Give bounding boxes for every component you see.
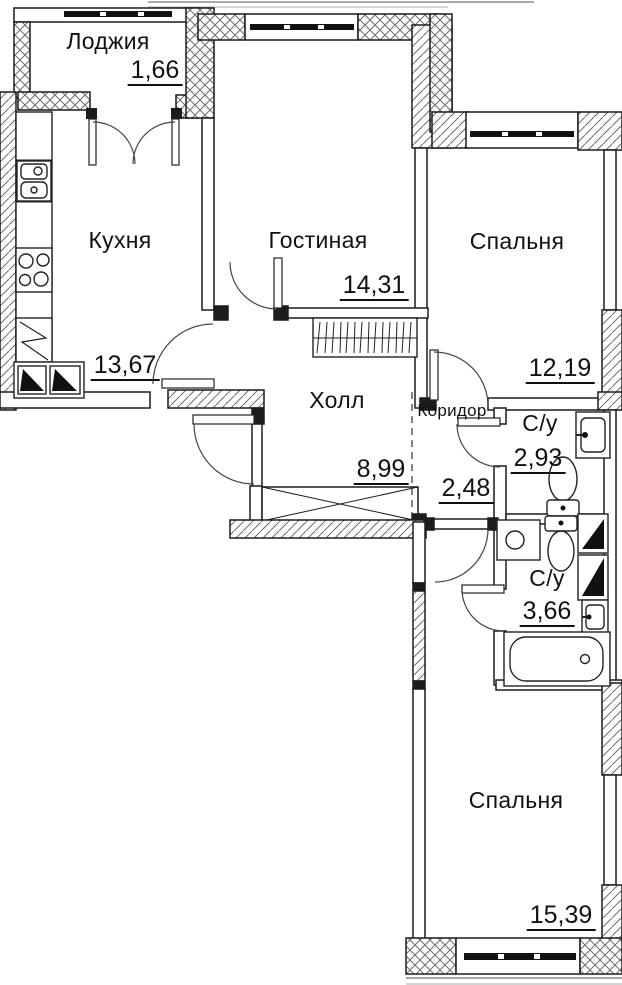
washbasin-icon: [582, 600, 608, 634]
bathroom2-door: [462, 585, 504, 631]
loggia-window: [14, 8, 198, 22]
bathtub-icon: [504, 632, 610, 686]
room-label-corridor: Коридор: [417, 402, 486, 420]
room-area-bedroom1: 12,19: [526, 356, 595, 384]
room-label-bath2: С/у: [529, 566, 564, 590]
room-label-living: Гостиная: [269, 228, 368, 252]
washing-machine-icon: [497, 520, 540, 560]
room-label-kitchen: Кухня: [88, 228, 151, 252]
bath-vent-shaft-icon: [578, 514, 608, 600]
room-area-corridor: 2,48: [439, 476, 494, 504]
room-area-bath1: 2,93: [511, 446, 566, 474]
corridor-door: [435, 529, 488, 582]
floor-plan-drawing: [0, 0, 622, 985]
room-label-bedroom2: Спальня: [469, 788, 564, 812]
floor-plan-page: { "plan": { "type": "apartment-floor-pla…: [0, 0, 622, 985]
shaft-box: [250, 486, 418, 522]
bedroom2-window: [456, 938, 580, 974]
living-room-window: [198, 14, 358, 40]
bedroom1-window: [466, 112, 578, 148]
kitchen-sink-icon: [17, 161, 51, 201]
kitchen-door: [153, 324, 214, 388]
room-label-bath1: С/у: [522, 411, 557, 435]
room-area-bedroom2: 15,39: [527, 903, 596, 931]
bathroom1-door: [457, 418, 500, 467]
refrigerator-icon: [16, 318, 52, 362]
room-area-bath2: 3,66: [520, 599, 575, 627]
room-label-bedroom1: Спальня: [470, 229, 565, 253]
wall-sink-icon: [576, 412, 610, 458]
living-room-door: [230, 258, 282, 309]
room-area-loggia: 1,66: [128, 58, 183, 86]
room-area-hall: 8,99: [354, 457, 409, 485]
room-area-kitchen: 13,67: [91, 353, 160, 381]
toilet-icon-2: [545, 516, 577, 571]
stove-icon: [16, 248, 52, 292]
bedroom1-door: [430, 350, 488, 406]
room-area-living: 14,31: [340, 273, 409, 301]
room-label-hall: Холл: [309, 388, 364, 412]
wardrobe-icon: [313, 318, 417, 357]
entrance-door: [193, 415, 254, 484]
room-label-loggia: Лоджия: [66, 29, 149, 53]
vent-shaft-icon: [14, 362, 84, 398]
loggia-door: [86, 108, 182, 165]
loggia-walls: [14, 8, 214, 118]
